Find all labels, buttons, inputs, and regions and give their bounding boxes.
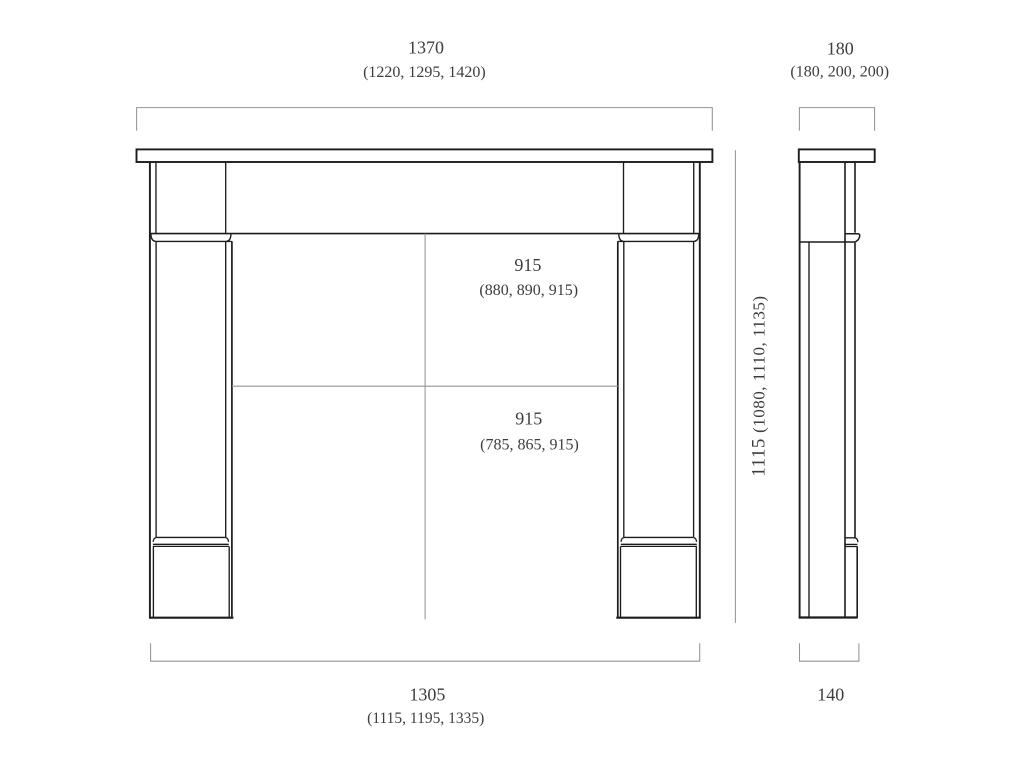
svg-text:180: 180 xyxy=(827,39,854,59)
svg-text:1370: 1370 xyxy=(408,38,444,58)
svg-text:(1115, 1195, 1335): (1115, 1195, 1335) xyxy=(367,710,484,727)
svg-text:(785, 865, 915): (785, 865, 915) xyxy=(480,437,579,454)
svg-text:915: 915 xyxy=(514,255,541,275)
svg-text:(180, 200, 200): (180, 200, 200) xyxy=(790,63,889,80)
svg-text:140: 140 xyxy=(817,685,844,705)
svg-text:(1220, 1295, 1420): (1220, 1295, 1420) xyxy=(363,64,486,81)
svg-text:(880, 890, 915): (880, 890, 915) xyxy=(479,282,578,299)
svg-text:1115 (1080, 1110, 1135): 1115 (1080, 1110, 1135) xyxy=(748,295,769,476)
svg-text:915: 915 xyxy=(515,408,542,428)
svg-text:1305: 1305 xyxy=(409,685,445,705)
